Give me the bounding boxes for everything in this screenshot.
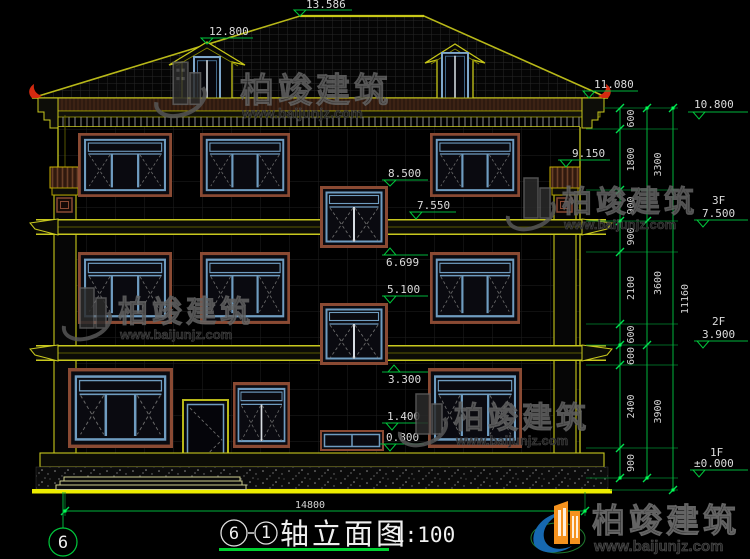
watermark-brand: 柏竣建筑 xyxy=(454,401,590,435)
dim-middle-0: 3300 xyxy=(653,152,664,176)
dim-total: 11160 xyxy=(680,284,691,314)
title-bubble-left: 6 xyxy=(229,524,239,544)
window-3f-left xyxy=(79,134,170,195)
dim-inner-0: 600 xyxy=(626,109,637,127)
level-1f-value: ±0.000 xyxy=(694,457,734,470)
stair-window-middle xyxy=(322,305,387,364)
elev-band-mid-value: 7.550 xyxy=(417,199,450,212)
elev-pilaster-value: 9.150 xyxy=(572,147,605,160)
brand-logo-url: www.baijunjz.com xyxy=(593,538,723,555)
cad-elevation-drawing: 13.586 12.800 11.080 9.150 8.500 7.550 xyxy=(0,0,750,559)
dim-inner-5: 600 xyxy=(626,325,637,343)
watermark-url: www.baijunjz.com xyxy=(119,327,232,342)
watermark-brand: 柏竣建筑 xyxy=(118,295,254,329)
title-bubble-right: 1 xyxy=(261,523,271,543)
elev-eave-value: 11.080 xyxy=(594,78,634,91)
stair-window-upper xyxy=(322,188,387,247)
elev-dormer-value: 12.800 xyxy=(209,25,249,38)
title-scale: 1:100 xyxy=(392,523,455,547)
base-zone xyxy=(32,453,612,494)
window-1f-left xyxy=(70,370,172,447)
level-2f-value: 3.900 xyxy=(702,328,735,341)
dim-inner-8: 900 xyxy=(626,454,637,472)
watermark-url: www.baijunjz.com xyxy=(241,105,363,121)
elev-stairA-top-value: 8.500 xyxy=(388,167,421,180)
window-3f-right xyxy=(431,134,518,195)
level-3f-label: 3F xyxy=(712,194,725,207)
dim-inner-1: 1800 xyxy=(626,147,637,171)
dim-middle-1: 3600 xyxy=(653,271,664,295)
level-2f-label: 2F xyxy=(712,315,725,328)
watermark-brand: 柏竣建筑 xyxy=(562,185,698,219)
level-3f-value: 7.500 xyxy=(702,207,735,220)
dormer-right-window xyxy=(442,53,468,102)
brand-logo-text: 柏竣建筑 xyxy=(592,502,740,539)
title-text: 轴立面图 xyxy=(280,518,408,551)
watermark-url: www.baijunjz.com xyxy=(455,433,568,448)
window-2f-right xyxy=(431,254,518,323)
dim-middle-2: 3900 xyxy=(653,399,664,423)
window-1f-mid xyxy=(234,384,288,447)
width-dim-value: 14800 xyxy=(295,500,325,511)
dim-inner-7: 2400 xyxy=(626,394,637,418)
entry-steps xyxy=(56,477,246,490)
elev-stairA-bot-value: 6.699 xyxy=(386,256,419,269)
dim-inner-4: 2100 xyxy=(626,276,637,300)
title-underline xyxy=(219,548,389,551)
level-parapet-value: 10.800 xyxy=(694,98,734,111)
elev-stairC-top-value: 1.400 xyxy=(387,410,420,423)
dim-inner-6: 600 xyxy=(626,347,637,365)
window-3f-mid xyxy=(201,134,288,195)
elev-stairB-top-value: 5.100 xyxy=(387,283,420,296)
axis-bubble-value: 6 xyxy=(58,533,68,553)
elev-ridge-value: 13.586 xyxy=(306,0,346,11)
watermark-url: www.baijunjz.com xyxy=(563,217,676,232)
drawing-canvas: 13.586 12.800 11.080 9.150 8.500 7.550 xyxy=(0,0,750,559)
stair-window-lower xyxy=(321,431,383,450)
elev-stairB-bot-value: 3.300 xyxy=(388,373,421,386)
